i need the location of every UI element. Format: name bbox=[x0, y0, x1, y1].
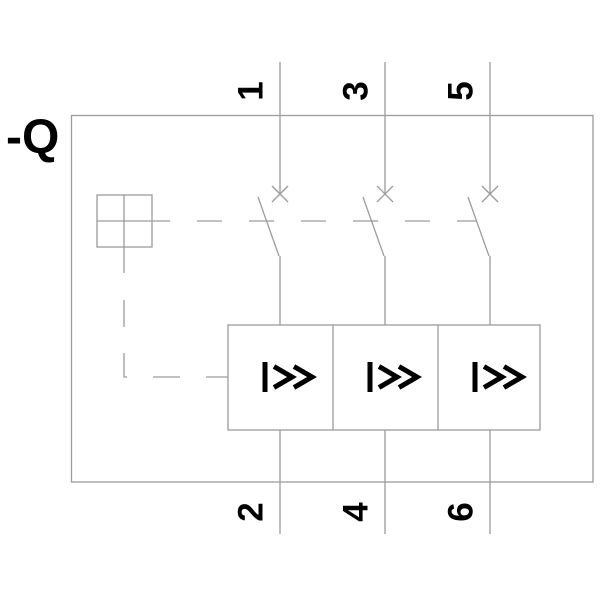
pole-3-contact bbox=[468, 62, 498, 534]
trip-unit-outline bbox=[228, 325, 540, 430]
overcurrent-release-symbol bbox=[475, 362, 522, 392]
terminal-label-top-1: 1 bbox=[234, 81, 269, 100]
switch-blade bbox=[363, 197, 384, 256]
overcurrent-release-symbol bbox=[265, 362, 312, 392]
operating-mechanism-symbol bbox=[97, 195, 170, 273]
terminal-label-bottom-4: 4 bbox=[339, 502, 374, 521]
switch-blade bbox=[258, 197, 279, 256]
trip-unit-row bbox=[228, 325, 540, 430]
pole-1-contact bbox=[258, 62, 288, 534]
terminal-label-bottom-6: 6 bbox=[444, 502, 479, 521]
terminal-label-top-3: 3 bbox=[339, 81, 374, 100]
terminal-label-bottom-2: 2 bbox=[234, 502, 269, 521]
device-designation-label: -Q bbox=[6, 114, 59, 162]
switch-blade bbox=[468, 197, 489, 256]
enclosure-outline bbox=[72, 116, 594, 483]
pole-2-contact bbox=[363, 62, 393, 534]
schematic-canvas: -Q 1 3 5 2 4 6 bbox=[0, 0, 600, 600]
overcurrent-release-symbol bbox=[370, 362, 417, 392]
coupling-dashed-line-to-trip-units bbox=[124, 300, 228, 377]
terminal-label-top-5: 5 bbox=[444, 81, 479, 100]
breaker-line-art bbox=[0, 0, 600, 600]
